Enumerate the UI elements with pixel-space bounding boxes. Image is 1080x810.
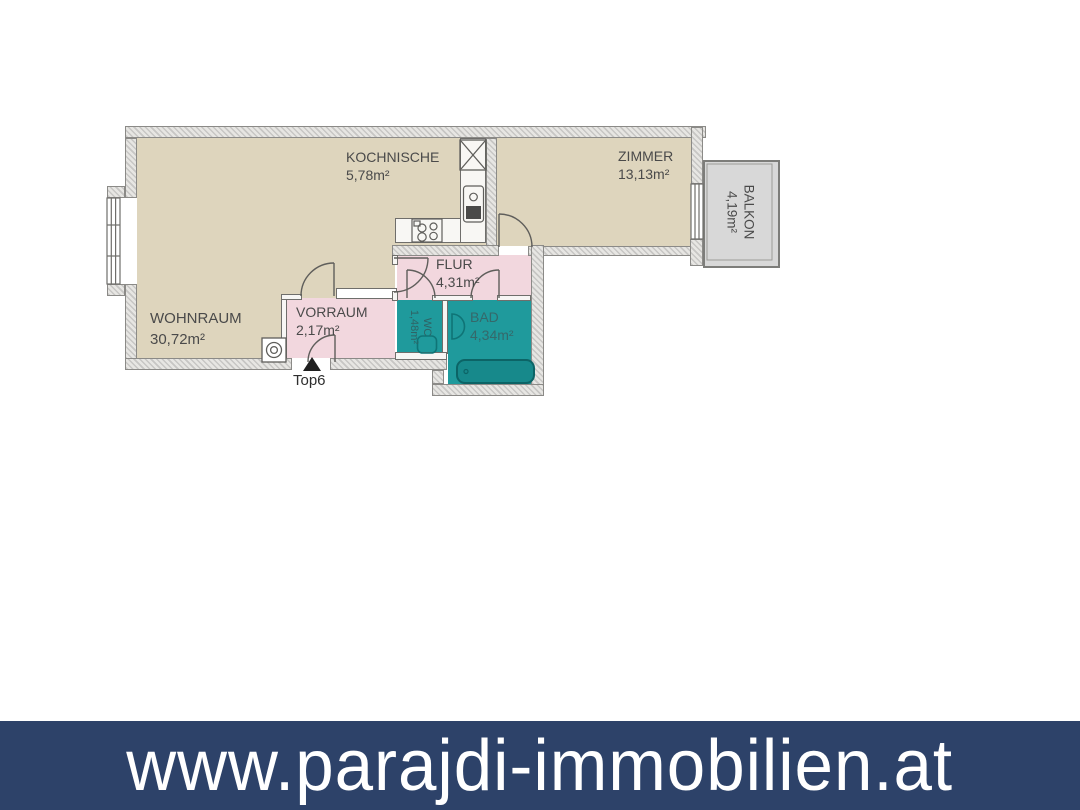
room-area: 30,72m² bbox=[150, 329, 242, 350]
footer-banner: www.parajdi-immobilien.at bbox=[0, 721, 1080, 810]
label-wohnraum: WOHNRAUM 30,72m² bbox=[150, 308, 242, 350]
entrance-label: Top6 bbox=[293, 372, 326, 389]
room-name: KOCHNISCHE bbox=[346, 148, 439, 166]
room-area: 4,34m² bbox=[470, 326, 514, 344]
wall-zimmer-right-bottom bbox=[690, 239, 703, 266]
wall-zimmer-bottom bbox=[528, 246, 691, 256]
wall-bad-right bbox=[531, 245, 544, 396]
room-name: BALKON bbox=[740, 185, 757, 240]
room-area: 4,19m² bbox=[723, 185, 740, 240]
wall-zimmer-right-top bbox=[691, 127, 703, 184]
closet-niche bbox=[336, 288, 397, 299]
entrance-triangle-icon bbox=[303, 357, 321, 371]
plan-symbols-layer bbox=[0, 0, 1080, 810]
wall-extension-bottom bbox=[432, 384, 544, 396]
room-name: FLUR bbox=[436, 255, 480, 273]
wall-vorraum-top bbox=[281, 294, 302, 300]
wall-flur-bad-right bbox=[497, 295, 531, 301]
wall-bay-stub-top bbox=[107, 186, 125, 198]
label-flur: FLUR 4,31m² bbox=[436, 255, 480, 291]
room-name: ZIMMER bbox=[618, 147, 673, 165]
kitchen-counter-column bbox=[460, 138, 486, 243]
floorplan-page: WOHNRAUM 30,72m² KOCHNISCHE 5,78m² ZIMME… bbox=[0, 0, 1080, 810]
room-name: WOHNRAUM bbox=[150, 308, 242, 329]
label-balkon: BALKON 4,19m² bbox=[703, 160, 776, 264]
wall-kochnische-zimmer bbox=[486, 138, 497, 246]
room-name: WC bbox=[420, 310, 433, 344]
label-wc: WC 1,48m² bbox=[397, 300, 442, 354]
label-bad: BAD 4,34m² bbox=[470, 308, 514, 344]
room-area: 5,78m² bbox=[346, 166, 439, 184]
wall-left-upper bbox=[125, 138, 137, 198]
label-vorraum: VORRAUM 2,17m² bbox=[296, 303, 368, 339]
wall-flur-left-top-stub bbox=[392, 255, 398, 265]
room-name: BAD bbox=[470, 308, 514, 326]
website-url: www.parajdi-immobilien.at bbox=[127, 725, 954, 807]
label-kochnische: KOCHNISCHE 5,78m² bbox=[346, 148, 439, 184]
wall-bottom-left bbox=[125, 358, 292, 370]
label-zimmer: ZIMMER 13,13m² bbox=[618, 147, 673, 183]
room-area: 1,48m² bbox=[407, 310, 420, 344]
room-area: 13,13m² bbox=[618, 165, 673, 183]
room-name: VORRAUM bbox=[296, 303, 368, 321]
wall-vorraum-left bbox=[281, 294, 287, 358]
room-area: 4,31m² bbox=[436, 273, 480, 291]
wall-wc-bad bbox=[442, 300, 448, 354]
room-area: 2,17m² bbox=[296, 321, 368, 339]
wall-extension-left bbox=[432, 370, 444, 384]
wall-left-lower bbox=[125, 284, 137, 360]
window-left-icon bbox=[107, 198, 120, 284]
wall-top bbox=[125, 126, 706, 138]
wall-bay-stub-bottom bbox=[107, 284, 125, 296]
window-balkon-icon bbox=[691, 184, 703, 239]
